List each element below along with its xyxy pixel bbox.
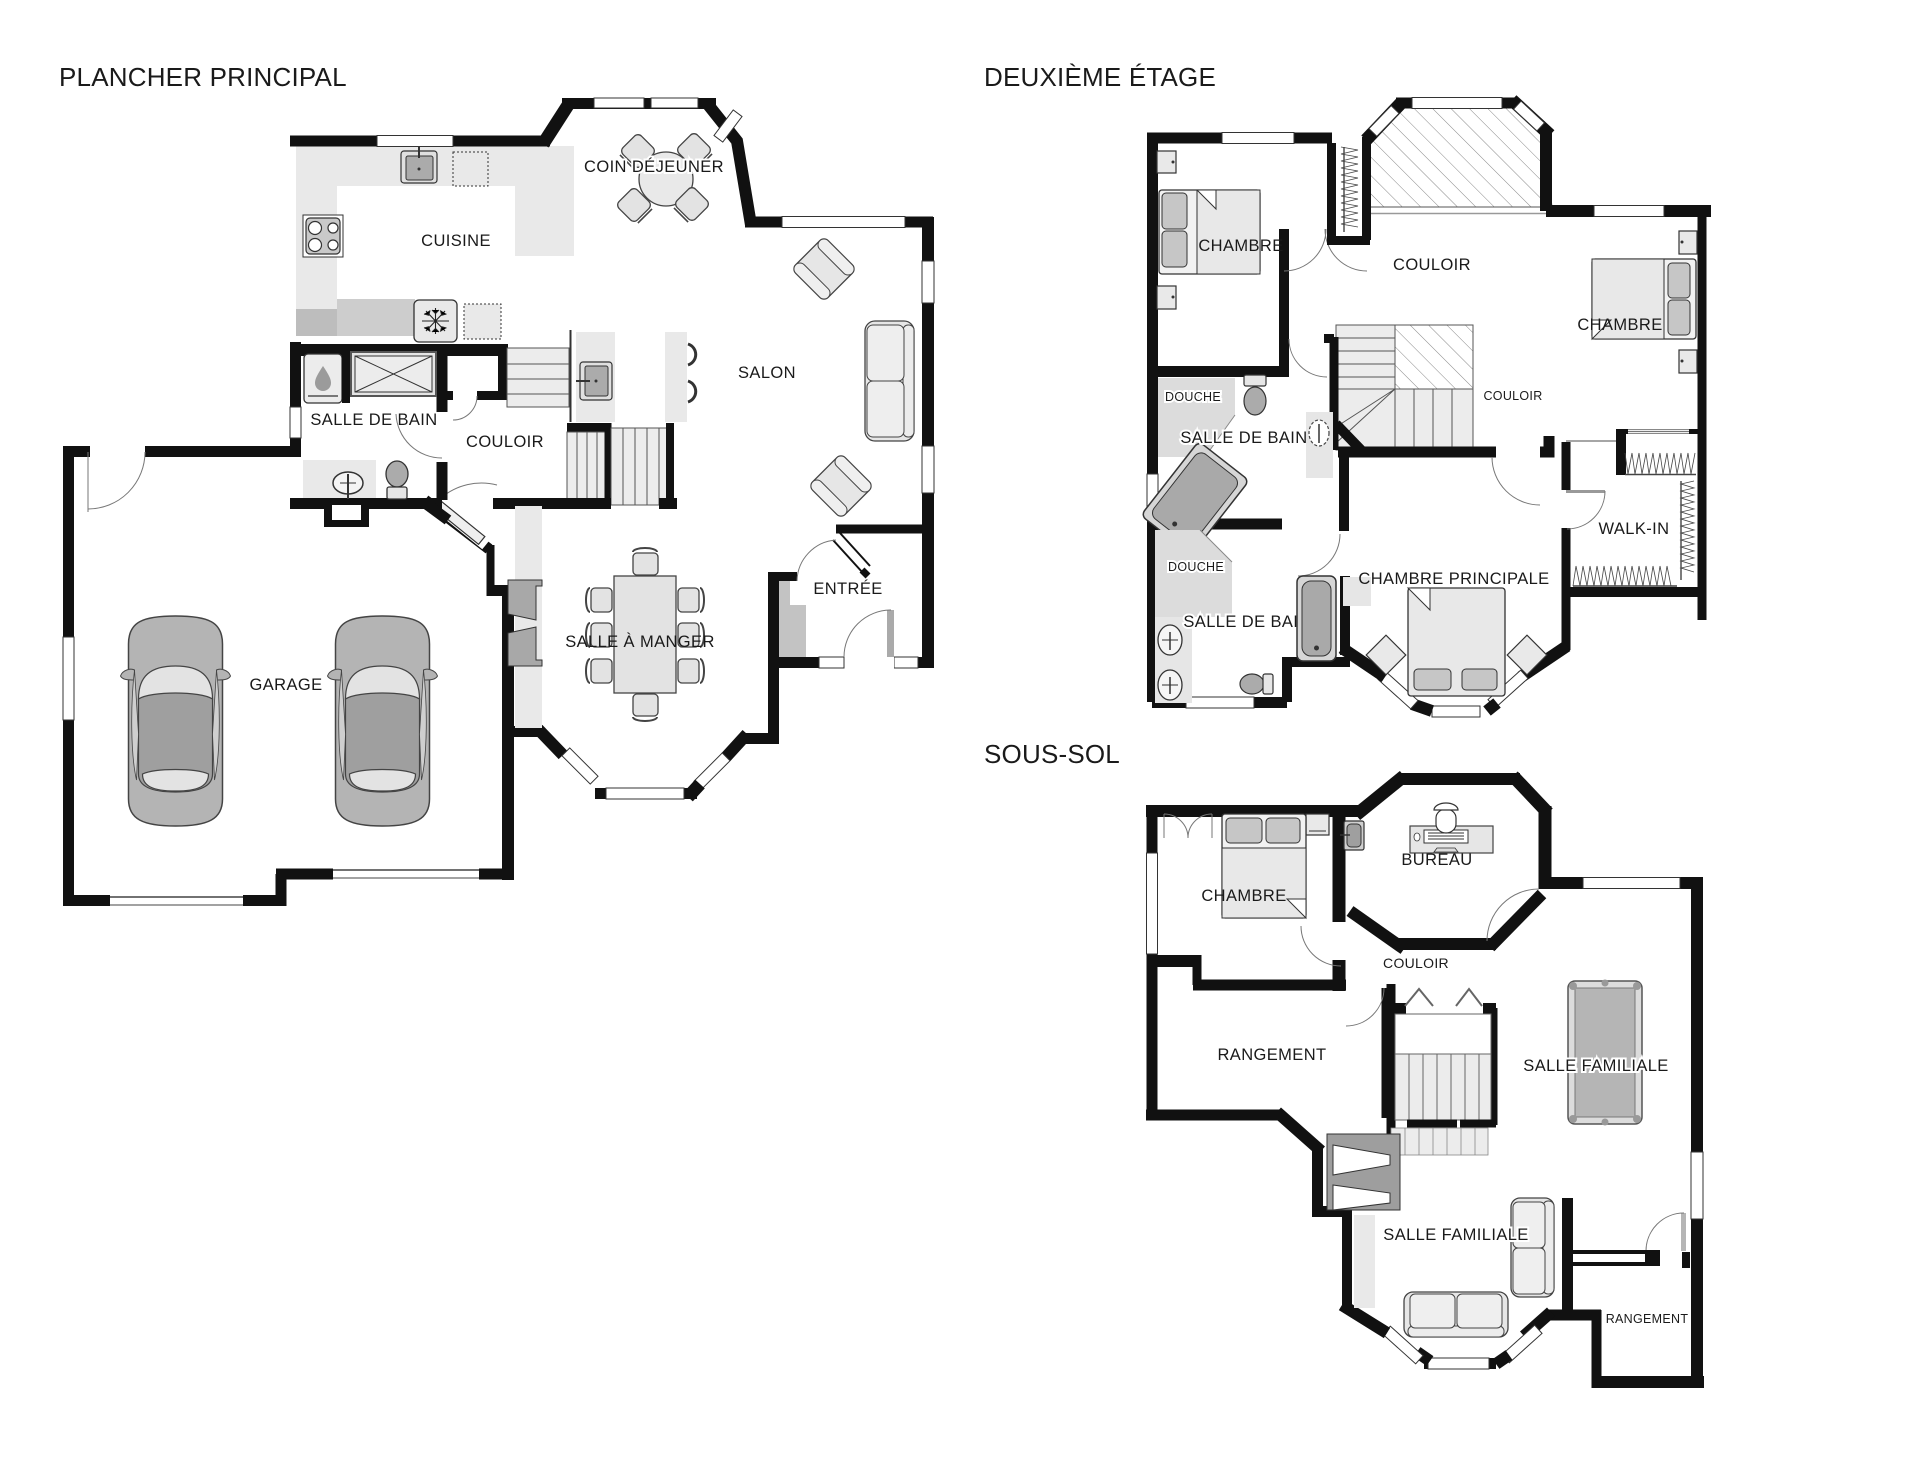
svg-text:SOUS-SOL: SOUS-SOL	[984, 739, 1120, 769]
svg-text:CHAMBRE PRINCIPALE: CHAMBRE PRINCIPALE	[1358, 570, 1549, 588]
svg-text:COULOIR: COULOIR	[1483, 389, 1542, 403]
svg-text:ENTRÉE: ENTRÉE	[813, 579, 882, 598]
svg-text:COIN DÉJEUNER: COIN DÉJEUNER	[584, 157, 724, 176]
svg-text:CHAMBRE: CHAMBRE	[1198, 237, 1283, 255]
svg-text:SALLE À MANGER: SALLE À MANGER	[565, 632, 715, 651]
svg-text:BUREAU: BUREAU	[1401, 851, 1472, 869]
svg-text:COULOIR: COULOIR	[1393, 256, 1471, 274]
svg-text:DOUCHE: DOUCHE	[1165, 390, 1221, 404]
svg-text:DOUCHE: DOUCHE	[1168, 560, 1224, 574]
svg-text:SALLE DE BAIN: SALLE DE BAIN	[1180, 429, 1307, 447]
svg-text:COULOIR: COULOIR	[466, 433, 544, 451]
svg-text:RANGEMENT: RANGEMENT	[1217, 1046, 1326, 1064]
svg-text:SALON: SALON	[738, 364, 796, 382]
svg-text:CHAMBRE: CHAMBRE	[1201, 887, 1286, 905]
svg-text:WALK-IN: WALK-IN	[1599, 520, 1670, 538]
svg-text:SALLE DE BAIN: SALLE DE BAIN	[310, 411, 437, 429]
svg-text:DEUXIÈME ÉTAGE: DEUXIÈME ÉTAGE	[984, 62, 1216, 92]
svg-text:SALLE FAMILIALE: SALLE FAMILIALE	[1383, 1226, 1528, 1244]
svg-text:SALLE DE BAIN: SALLE DE BAIN	[1183, 613, 1310, 631]
svg-text:COULOIR: COULOIR	[1383, 955, 1449, 971]
svg-text:CHAMBRE: CHAMBRE	[1577, 316, 1662, 334]
svg-text:GARAGE: GARAGE	[249, 676, 322, 694]
svg-text:CUISINE: CUISINE	[421, 232, 491, 250]
svg-text:SALLE FAMILIALE: SALLE FAMILIALE	[1523, 1057, 1668, 1075]
svg-text:PLANCHER PRINCIPAL: PLANCHER PRINCIPAL	[59, 62, 347, 92]
svg-text:RANGEMENT: RANGEMENT	[1606, 1312, 1689, 1326]
